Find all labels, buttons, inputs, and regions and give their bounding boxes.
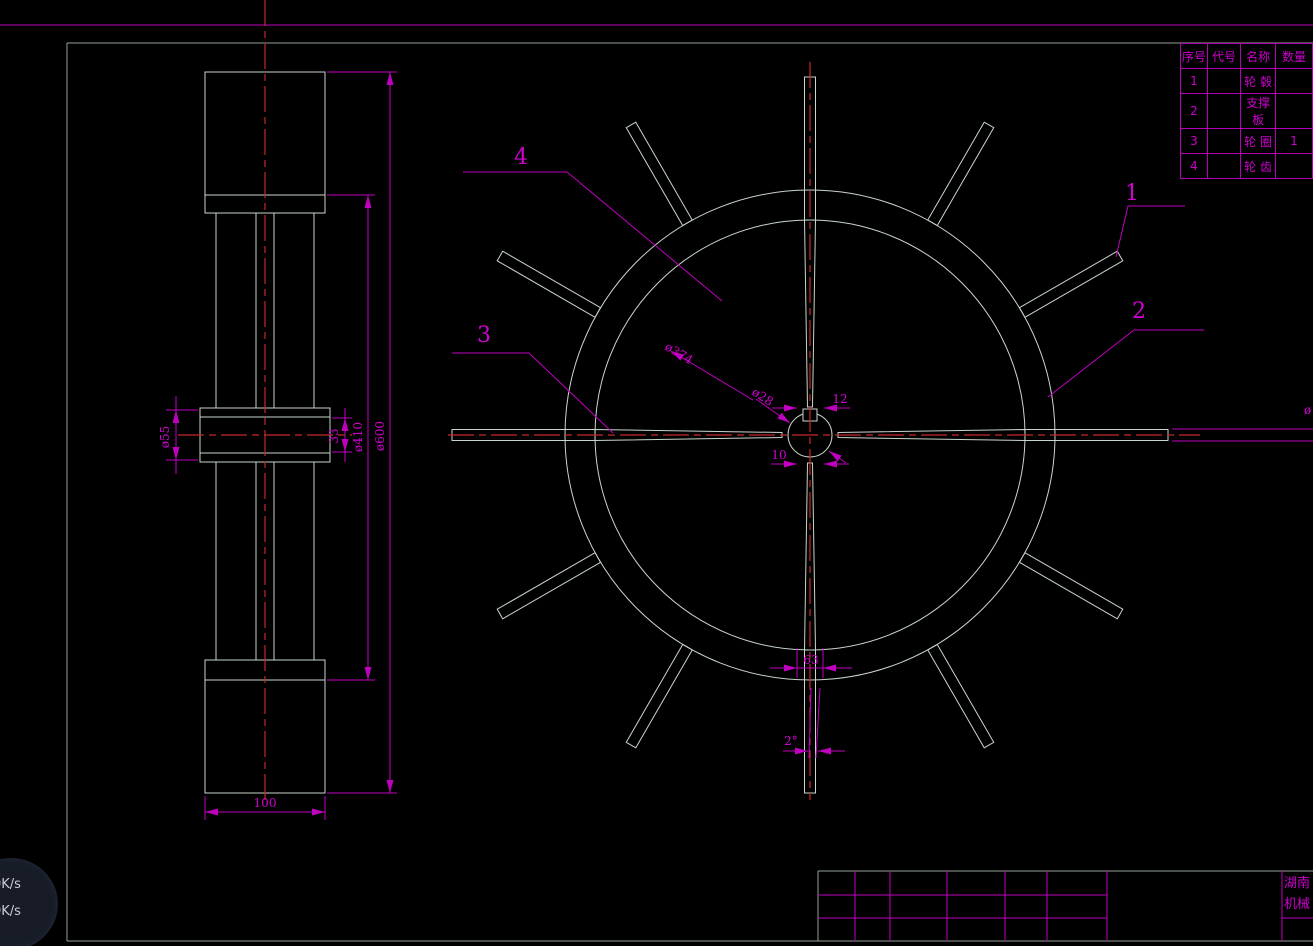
wheel-spoke: [626, 122, 692, 225]
balloon-2: 2: [1132, 299, 1146, 324]
download-speed: 0K/s: [0, 904, 21, 919]
dim-dia410: ø410: [351, 422, 365, 452]
balloon-labels: 4 3 1 2: [452, 145, 1204, 433]
part-name: 轮 齿: [1241, 154, 1276, 179]
part-name: 轮 毂: [1241, 69, 1276, 94]
dim-dia28: ø28: [749, 385, 775, 409]
part-no: 1: [1181, 69, 1208, 94]
header-code: 代号: [1207, 44, 1240, 69]
table-row: 4 轮 齿: [1181, 154, 1313, 179]
dim-dia55: ø55: [158, 426, 172, 449]
part-qty: [1275, 69, 1312, 94]
part-qty: [1275, 94, 1312, 129]
part-no: 4: [1181, 154, 1208, 179]
table-row: 2 支撑板: [1181, 94, 1313, 129]
company-line-2: 机械: [1284, 894, 1313, 915]
wheel-spoke: [1019, 251, 1122, 317]
dim-dia-cutoff: ø: [1304, 403, 1311, 417]
part-code: [1207, 94, 1240, 129]
header-qty: 数量: [1275, 44, 1312, 69]
balloon-1: 1: [1125, 181, 1139, 206]
dim-10: 10: [771, 448, 786, 462]
wheel-spoke: [928, 644, 994, 747]
table-row: 1 轮 毂: [1181, 69, 1313, 94]
wheel-spoke: [626, 644, 692, 747]
dim-63: 63: [803, 653, 818, 667]
wheel-spoke: [1019, 553, 1122, 619]
part-no: 3: [1181, 129, 1208, 154]
cad-drawing-canvas: ø55 33 ø410 ø600 100 ø374: [0, 0, 1313, 946]
dim-2deg: 2°: [784, 734, 798, 748]
sheet-borders: [0, 25, 1313, 941]
dim-100: 100: [254, 796, 277, 810]
part-code: [1207, 154, 1240, 179]
title-block-company: 湖南 机械: [1284, 873, 1313, 915]
wheel-spoke: [928, 122, 994, 225]
parts-list-header-row: 序号 代号 名称 数量: [1181, 44, 1313, 69]
drawing-svg: ø55 33 ø410 ø600 100 ø374: [0, 0, 1313, 946]
table-row: 3 轮 圈 1: [1181, 129, 1313, 154]
dim-12: 12: [832, 392, 847, 406]
company-line-1: 湖南: [1284, 873, 1313, 894]
wheel-dimensions: ø374 ø28 12 10 63 2° ø: [662, 340, 1313, 758]
balloon-3: 3: [477, 323, 491, 348]
part-no: 2: [1181, 94, 1208, 129]
part-code: [1207, 69, 1240, 94]
dim-dia600: ø600: [373, 421, 387, 451]
dim-33: 33: [327, 428, 341, 443]
title-block-grid: [818, 871, 1313, 941]
part-name: 支撑板: [1241, 94, 1276, 129]
wheel-spoke: [497, 553, 600, 619]
section-view-dimensions: ø55 33 ø410 ø600 100: [158, 72, 397, 820]
header-name: 名称: [1241, 44, 1276, 69]
header-seq: 序号: [1181, 44, 1208, 69]
part-code: [1207, 129, 1240, 154]
part-qty: 1: [1275, 129, 1312, 154]
parts-list-table: 序号 代号 名称 数量 1 轮 毂 2 支撑板 3 轮 圈 1 4 轮 齿: [1180, 43, 1313, 179]
part-qty: [1275, 154, 1312, 179]
section-view: [178, 0, 352, 800]
wheel-front-view: [448, 62, 1200, 800]
balloon-4: 4: [514, 145, 528, 170]
upload-speed: 0K/s: [0, 877, 21, 892]
wheel-spoke: [497, 251, 600, 317]
part-name: 轮 圈: [1241, 129, 1276, 154]
